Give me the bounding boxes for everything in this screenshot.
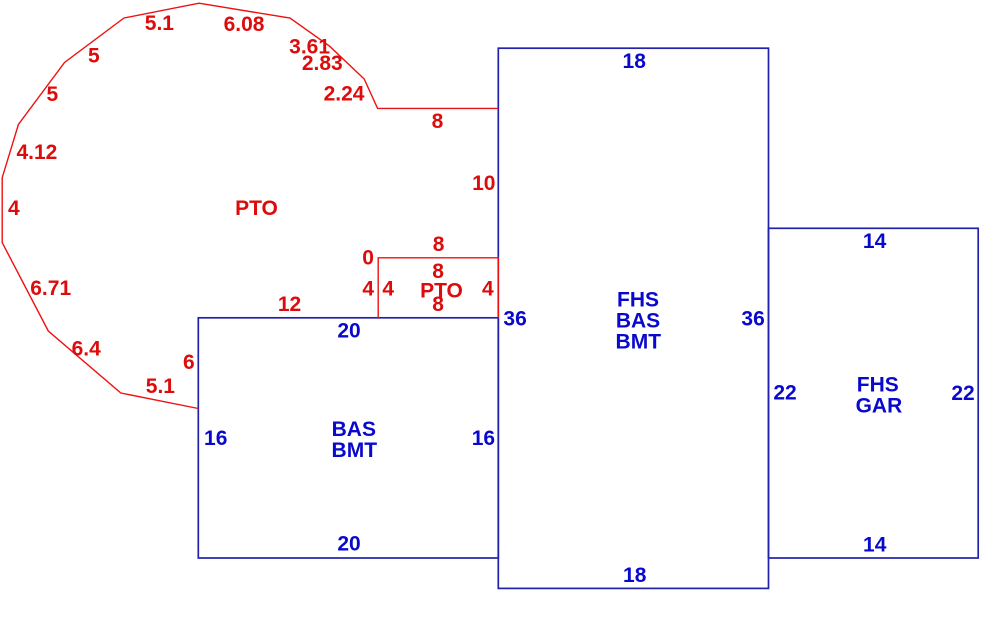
svg-text:36: 36 — [503, 307, 526, 330]
svg-text:36: 36 — [741, 307, 764, 330]
svg-text:FHS: FHS — [857, 374, 899, 397]
svg-text:10: 10 — [472, 172, 495, 195]
svg-text:6.71: 6.71 — [30, 277, 71, 300]
svg-text:5: 5 — [88, 45, 100, 68]
svg-text:6.08: 6.08 — [224, 13, 265, 36]
svg-text:5.1: 5.1 — [146, 375, 176, 398]
svg-text:8: 8 — [432, 110, 444, 133]
svg-text:8: 8 — [432, 293, 444, 316]
svg-text:4: 4 — [362, 277, 374, 300]
svg-text:2.24: 2.24 — [324, 83, 365, 106]
svg-text:4: 4 — [8, 197, 20, 220]
svg-text:GAR: GAR — [856, 395, 903, 418]
svg-text:BAS: BAS — [332, 418, 376, 441]
svg-text:4.12: 4.12 — [16, 141, 57, 164]
svg-text:18: 18 — [623, 50, 647, 73]
svg-text:8: 8 — [433, 233, 445, 256]
svg-text:BAS: BAS — [616, 310, 660, 333]
svg-text:14: 14 — [863, 230, 887, 253]
svg-text:BMT: BMT — [332, 439, 378, 462]
svg-text:5: 5 — [47, 83, 59, 106]
svg-text:18: 18 — [623, 564, 647, 587]
svg-text:6: 6 — [183, 351, 195, 374]
svg-text:20: 20 — [337, 320, 360, 343]
svg-text:12: 12 — [278, 293, 301, 316]
svg-text:0: 0 — [362, 247, 374, 270]
svg-text:16: 16 — [204, 427, 227, 450]
svg-text:22: 22 — [951, 382, 974, 405]
svg-text:2.83: 2.83 — [302, 52, 343, 75]
svg-text:14: 14 — [863, 533, 887, 556]
svg-text:4: 4 — [382, 277, 394, 300]
svg-text:20: 20 — [337, 533, 360, 556]
svg-text:22: 22 — [773, 382, 796, 405]
svg-text:6.4: 6.4 — [72, 337, 102, 360]
svg-text:PTO: PTO — [235, 197, 278, 220]
svg-text:4: 4 — [482, 277, 494, 300]
svg-text:16: 16 — [472, 427, 495, 450]
svg-text:5.1: 5.1 — [145, 12, 175, 35]
svg-text:BMT: BMT — [616, 331, 662, 354]
svg-text:FHS: FHS — [617, 289, 659, 312]
